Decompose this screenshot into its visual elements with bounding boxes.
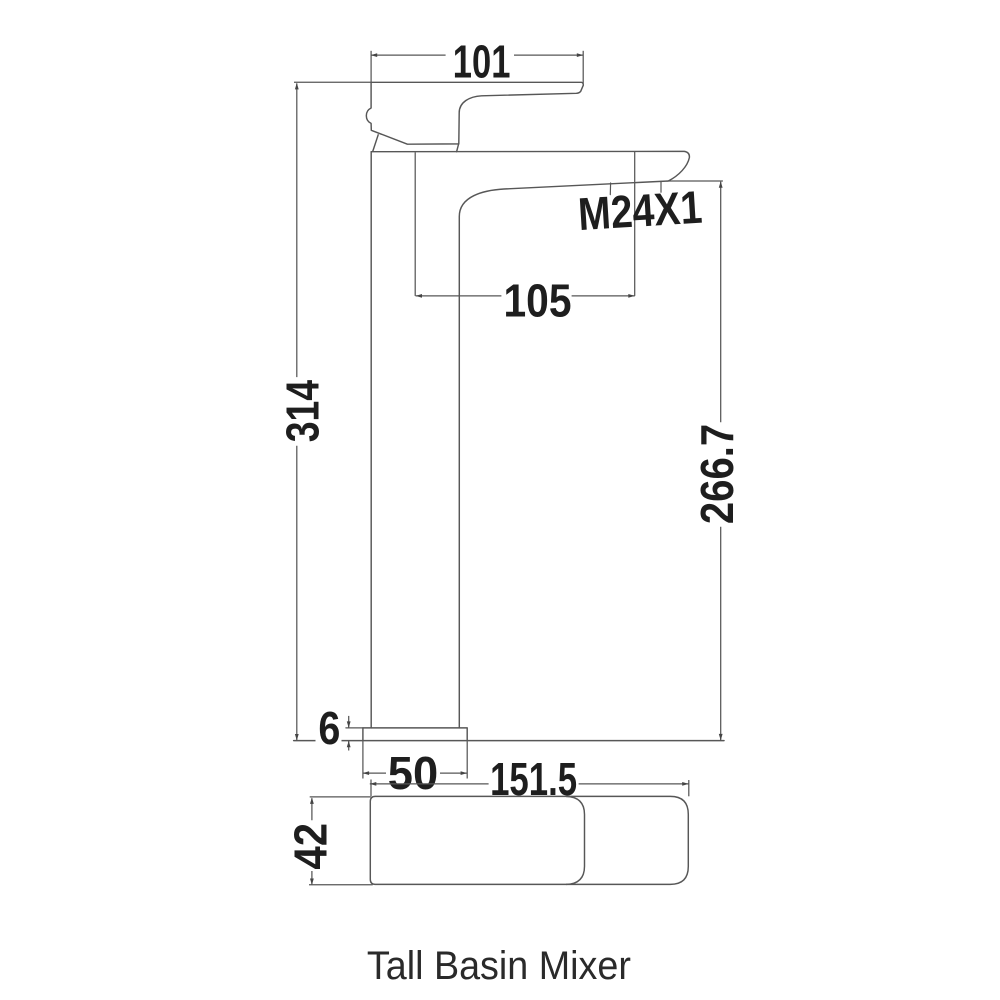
svg-text:6: 6 — [318, 702, 340, 754]
svg-text:M24X1: M24X1 — [577, 181, 704, 240]
svg-text:42: 42 — [284, 823, 336, 870]
svg-text:105: 105 — [504, 274, 572, 326]
svg-text:101: 101 — [453, 36, 511, 88]
svg-text:151.5: 151.5 — [490, 753, 577, 805]
svg-text:266.7: 266.7 — [691, 424, 743, 524]
svg-text:Tall Basin Mixer: Tall Basin Mixer — [367, 944, 631, 988]
svg-text:314: 314 — [276, 380, 328, 443]
svg-text:50: 50 — [388, 747, 438, 799]
